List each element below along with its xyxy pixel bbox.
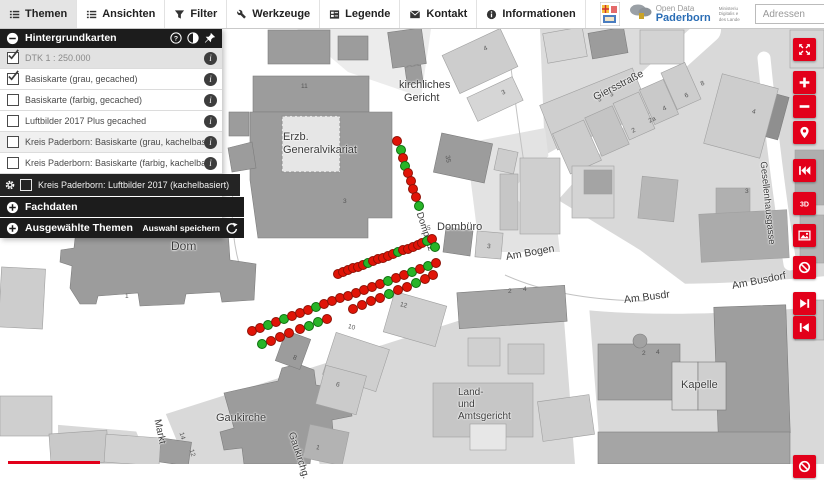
layer-checkbox[interactable] xyxy=(7,73,19,85)
panel-sections: FachdatenAusgewählte ThemenAuswahl speic… xyxy=(0,197,222,238)
funnel-icon xyxy=(174,9,185,20)
layer-info-button[interactable]: i xyxy=(204,157,217,170)
layer-checkbox[interactable] xyxy=(7,136,19,148)
map-marker-red[interactable] xyxy=(431,258,441,268)
tab-label: Werkzeuge xyxy=(252,8,310,20)
tab-label: Kontakt xyxy=(426,8,467,20)
paderborn-crest-logo xyxy=(600,2,620,26)
contrast-icon[interactable] xyxy=(187,32,199,44)
layer-row[interactable]: Basiskarte (farbig, gecached)i xyxy=(0,90,222,111)
3d-view-button[interactable]: 3D xyxy=(793,192,816,215)
layer-checkbox[interactable] xyxy=(7,157,19,169)
layer-label: Kreis Paderborn: Luftbilder 2017 (kachel… xyxy=(38,180,235,190)
layer-info-button[interactable]: i xyxy=(204,115,217,128)
tab-label: Filter xyxy=(190,8,217,20)
list-icon xyxy=(86,9,97,20)
zoom-in-button[interactable] xyxy=(793,71,816,94)
layer-checkbox[interactable] xyxy=(7,52,19,64)
ministry-logo: Ministeriu Digitalis e des Lande xyxy=(719,6,751,22)
stepback-icon xyxy=(798,321,811,334)
section-label: Fachdaten xyxy=(25,201,238,213)
tab-kontakt[interactable]: Kontakt xyxy=(400,0,477,28)
tab-label: Ansichten xyxy=(102,8,155,20)
layer-checkbox[interactable] xyxy=(7,94,19,106)
map-street-label: Gericht xyxy=(404,92,439,104)
layer-panel: Hintergrundkarten ? DTK 1 : 250.000iBasi… xyxy=(0,28,222,238)
map-house-number: 3 xyxy=(745,188,749,195)
step-back-button[interactable] xyxy=(793,316,816,339)
map-house-number: 2 xyxy=(508,288,512,295)
help-icon[interactable]: ? xyxy=(170,32,182,44)
map-house-number: 11 xyxy=(301,83,308,90)
section-ausgew-hlte-themen[interactable]: Ausgewählte ThemenAuswahl speichern xyxy=(0,218,244,238)
plus-icon xyxy=(798,76,811,89)
expand-icon xyxy=(798,43,811,56)
layer-list: DTK 1 : 250.000iBasiskarte (grau, gecach… xyxy=(0,48,222,196)
map-street-label: kirchliches xyxy=(399,79,450,91)
map-house-number: 3 xyxy=(343,198,347,205)
map-marker-green[interactable] xyxy=(414,201,424,211)
tab-legende[interactable]: Legende xyxy=(320,0,400,28)
map-street-label: und xyxy=(458,399,475,410)
tab-label: Informationen xyxy=(502,8,575,20)
list-icon xyxy=(9,9,20,20)
layer-row[interactable]: Kreis Paderborn: Basiskarte (farbig, kac… xyxy=(0,153,222,174)
mail-icon xyxy=(409,9,421,20)
map-marker-red[interactable] xyxy=(322,314,332,324)
tab-werkzeuge[interactable]: Werkzeuge xyxy=(227,0,320,28)
search-input[interactable] xyxy=(755,4,824,24)
map-marker-red[interactable] xyxy=(428,270,438,280)
fullscreen-button[interactable] xyxy=(793,38,816,61)
threed-icon: 3D xyxy=(798,197,811,210)
tab-label: Legende xyxy=(345,8,390,20)
plus-circle-icon xyxy=(6,201,19,214)
zoom-out-button[interactable] xyxy=(793,95,816,118)
layer-row[interactable]: Basiskarte (grau, gecached)i xyxy=(0,69,222,90)
save-selection-button[interactable]: Auswahl speichern xyxy=(143,223,220,233)
layer-row[interactable]: Luftbilder 2017 Plus gecachedi xyxy=(0,111,222,132)
tab-themen[interactable]: Themen xyxy=(0,0,77,28)
stepfwd-icon xyxy=(798,297,811,310)
layer-checkbox[interactable] xyxy=(7,115,19,127)
collapse-minus-icon[interactable] xyxy=(6,32,19,45)
info-icon xyxy=(486,9,497,20)
map-house-number: 4 xyxy=(656,349,660,356)
back-to-start-button[interactable] xyxy=(793,159,816,182)
map-marker-red[interactable] xyxy=(284,328,294,338)
map-street-label: Kapelle xyxy=(681,379,718,391)
layer-checkbox[interactable] xyxy=(20,179,32,191)
panel-header[interactable]: Hintergrundkarten ? xyxy=(0,28,222,48)
map-street-label: Generalvikariat xyxy=(283,144,357,156)
open-data-paderborn-logo: Open Data Paderborn xyxy=(628,2,711,27)
paderborn-text: Paderborn xyxy=(656,13,711,24)
tab-ansichten[interactable]: Ansichten xyxy=(77,0,165,28)
locate-button[interactable] xyxy=(793,121,816,144)
map-house-number: 2 xyxy=(642,350,646,357)
tab-label: Themen xyxy=(25,8,67,20)
map-street-label: Land- xyxy=(458,387,484,398)
disable-icon xyxy=(798,460,811,473)
layer-row[interactable]: Kreis Paderborn: Basiskarte (grau, kache… xyxy=(0,132,222,153)
layer-label: DTK 1 : 250.000 xyxy=(25,53,204,63)
svg-text:3D: 3D xyxy=(800,201,809,208)
layer-info-button[interactable]: i xyxy=(204,94,217,107)
section-label: Ausgewählte Themen xyxy=(25,222,143,234)
map-house-number: 35 xyxy=(444,155,452,163)
map-street-label: Dom xyxy=(171,239,196,253)
tab-bar: ThemenAnsichtenFilterWerkzeugeLegendeKon… xyxy=(0,0,586,28)
partial-control-button[interactable] xyxy=(793,455,816,478)
poi-off-button[interactable] xyxy=(793,256,816,279)
tab-filter[interactable]: Filter xyxy=(165,0,227,28)
layer-info-button[interactable]: i xyxy=(204,136,217,149)
map-street-label: Erzb. xyxy=(283,131,309,143)
layer-row[interactable]: Kreis Paderborn: Luftbilder 2017 (kachel… xyxy=(0,174,240,196)
layer-label: Kreis Paderborn: Basiskarte (farbig, kac… xyxy=(25,158,204,168)
plus-circle-icon xyxy=(6,222,19,235)
layer-label: Basiskarte (farbig, gecached) xyxy=(25,95,204,105)
save-export-icon xyxy=(225,222,238,235)
brand-area: Open Data Paderborn Ministeriu Digitalis… xyxy=(600,0,751,28)
map-house-number: 1 xyxy=(125,293,129,300)
layer-row[interactable]: DTK 1 : 250.000i xyxy=(0,48,222,69)
ministry-line: des Lande xyxy=(719,17,751,22)
cloud-icon xyxy=(628,2,654,27)
map-street-label: Gaukirche xyxy=(216,412,266,424)
address-search xyxy=(755,0,824,28)
wrench-icon xyxy=(236,9,247,20)
map-street-label: Amtsgericht xyxy=(458,411,511,422)
panel-title: Hintergrundkarten xyxy=(25,32,170,44)
gear-icon[interactable] xyxy=(4,179,16,191)
map-street-label: Dombüro xyxy=(437,221,482,233)
pin-icon[interactable] xyxy=(204,32,216,44)
step-forward-button[interactable] xyxy=(793,292,816,315)
image-icon xyxy=(798,229,811,242)
map-marker-green[interactable] xyxy=(430,242,440,252)
map-house-number: 3 xyxy=(487,243,491,250)
top-toolbar: ThemenAnsichtenFilterWerkzeugeLegendeKon… xyxy=(0,0,824,29)
layer-info-button[interactable]: i xyxy=(204,73,217,86)
legend-icon xyxy=(329,9,340,20)
layer-info-button[interactable]: i xyxy=(204,52,217,65)
disable-icon xyxy=(798,261,811,274)
app-root: { "toolbar": { "tabs": [ {"label":"Theme… xyxy=(0,0,824,464)
layer-label: Basiskarte (grau, gecached) xyxy=(25,74,204,84)
layer-label: Kreis Paderborn: Basiskarte (grau, kache… xyxy=(25,137,204,147)
rewind-icon xyxy=(798,164,811,177)
svg-text:?: ? xyxy=(174,36,178,43)
section-fachdaten[interactable]: Fachdaten xyxy=(0,197,244,217)
background-image-button[interactable] xyxy=(793,224,816,247)
marker-icon xyxy=(798,126,811,139)
minus-icon xyxy=(798,100,811,113)
layer-label: Luftbilder 2017 Plus gecached xyxy=(25,116,204,126)
tab-informationen[interactable]: Informationen xyxy=(477,0,585,28)
map-house-number: 4 xyxy=(523,286,527,293)
